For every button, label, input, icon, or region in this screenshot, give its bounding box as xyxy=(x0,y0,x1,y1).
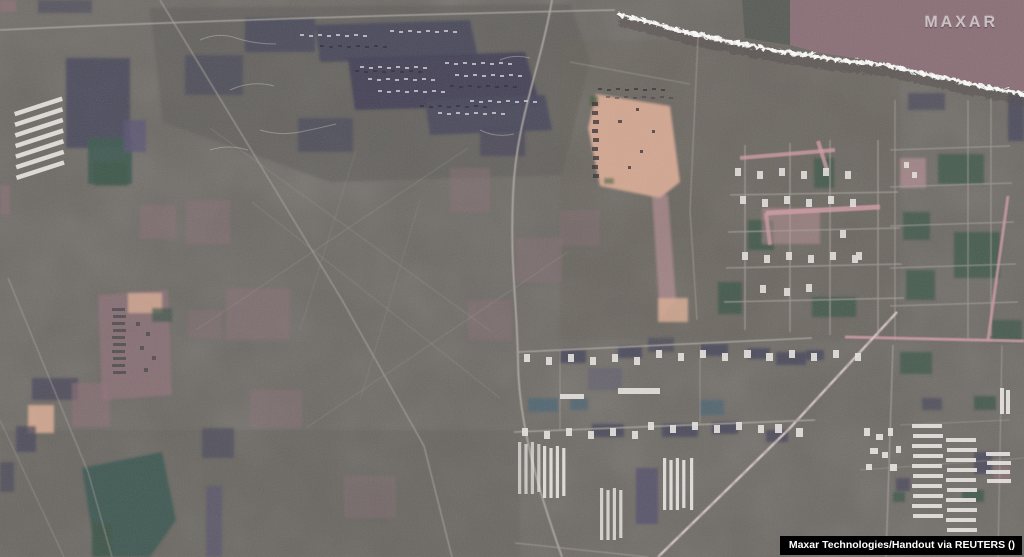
credit-bar: Maxar Technologies/Handout via REUTERS (… xyxy=(780,536,1022,555)
grain-overlay xyxy=(0,0,1024,557)
maxar-watermark-logo: MAXAR xyxy=(924,14,998,32)
satellite-scene xyxy=(0,0,1024,557)
credit-text: Maxar Technologies/Handout via REUTERS (… xyxy=(789,539,1015,551)
satellite-image: MAXAR Maxar Technologies/Handout via REU… xyxy=(0,0,1024,557)
